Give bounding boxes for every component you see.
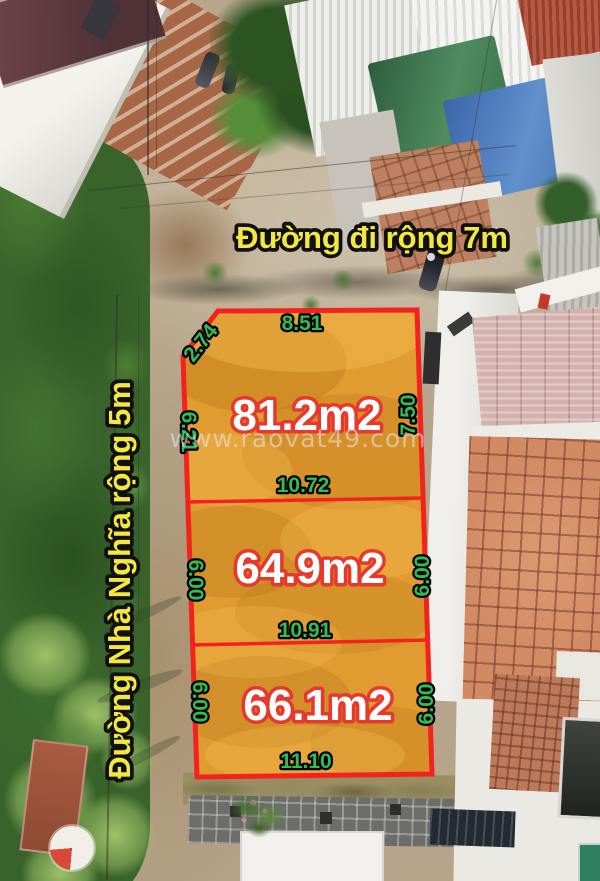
plot-2-area-label: 64.9m2 xyxy=(235,544,384,593)
plot-3-dim-right: 6.00 xyxy=(415,684,438,725)
plot-3-dim-left: 6.00 xyxy=(188,682,211,723)
watermark-text: www.raovat49.com xyxy=(170,424,427,453)
road-name-label-left: Đường Nhà Nghĩa rộng 5m xyxy=(102,381,137,779)
road-width-label-top: Đường đi rộng 7m xyxy=(236,220,508,255)
plot-2-dim-bottom: 10.91 xyxy=(279,619,332,642)
plot-1-dim-top: 8.51 xyxy=(282,312,323,335)
plot-overlay: 8.51 2.74 6.21 7.50 10.72 81.2m2 6.00 6.… xyxy=(0,0,600,881)
aerial-photo-stage: 8.51 2.74 6.21 7.50 10.72 81.2m2 6.00 6.… xyxy=(0,0,600,881)
plot-2-dim-left: 6.00 xyxy=(184,560,207,601)
plot-3-dim-bottom: 11.10 xyxy=(280,750,331,773)
plot-1-dim-bottom: 10.72 xyxy=(277,474,330,497)
plot-3-area-label: 66.1m2 xyxy=(243,681,392,730)
plot-2-dim-right: 6.00 xyxy=(411,556,434,597)
